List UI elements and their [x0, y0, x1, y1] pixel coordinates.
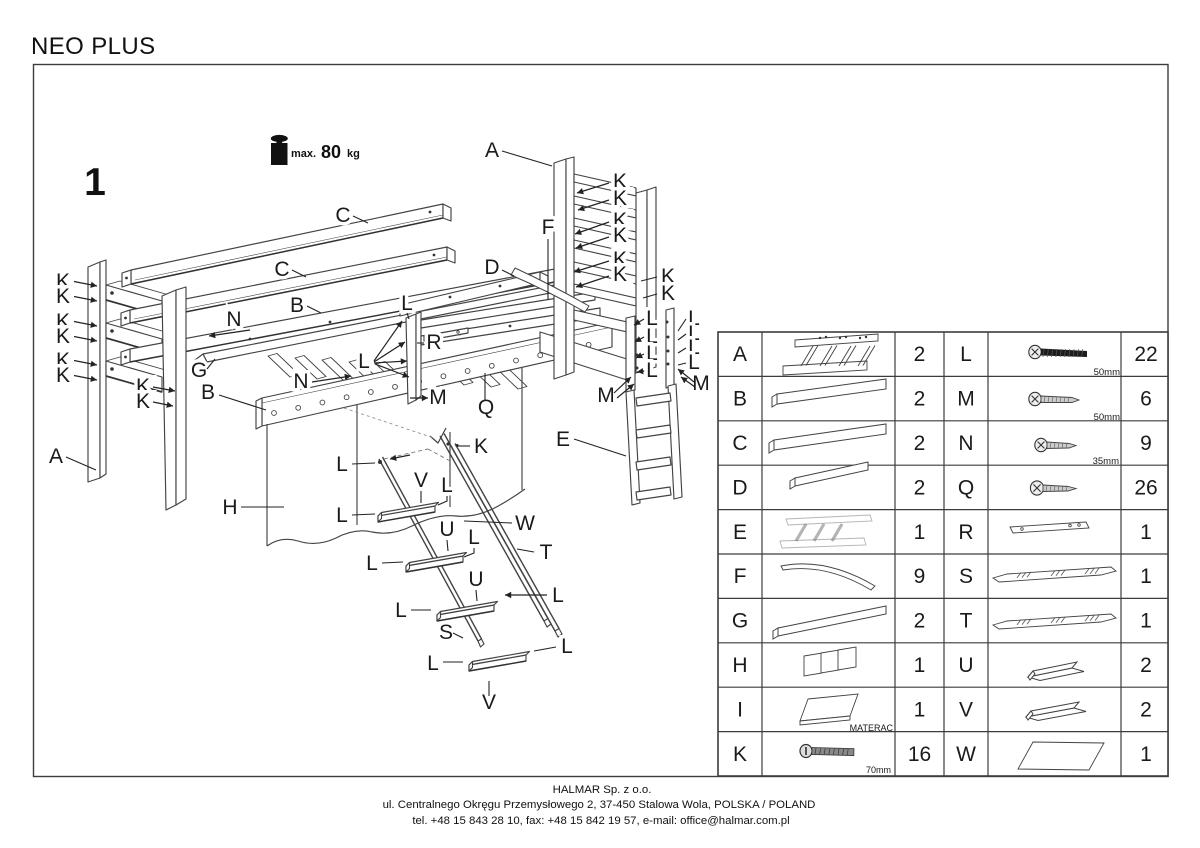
svg-text:L: L: [552, 584, 564, 607]
svg-text:Q: Q: [958, 476, 974, 499]
svg-text:K: K: [56, 325, 70, 348]
svg-text:26: 26: [1134, 476, 1157, 499]
svg-text:1: 1: [914, 521, 926, 544]
svg-text:L: L: [395, 599, 407, 622]
svg-text:H: H: [732, 654, 747, 677]
svg-text:K: K: [661, 282, 675, 305]
svg-text:K: K: [56, 364, 70, 387]
svg-text:70mm: 70mm: [866, 765, 891, 775]
svg-text:2: 2: [914, 343, 926, 366]
svg-text:A: A: [49, 445, 63, 468]
svg-text:R: R: [958, 521, 973, 544]
svg-text:L: L: [688, 351, 700, 374]
svg-text:K: K: [136, 390, 150, 413]
svg-text:2: 2: [1140, 698, 1152, 721]
svg-text:1: 1: [914, 698, 926, 721]
svg-text:E: E: [556, 428, 570, 451]
svg-text:D: D: [732, 476, 747, 499]
svg-text:T: T: [540, 541, 553, 564]
svg-text:L: L: [336, 453, 348, 476]
svg-text:N: N: [958, 432, 973, 455]
svg-text:L: L: [561, 635, 573, 658]
svg-text:L: L: [358, 350, 370, 373]
svg-text:Q: Q: [478, 396, 494, 419]
svg-text:I: I: [737, 698, 743, 721]
svg-text:B: B: [201, 381, 215, 404]
svg-text:U: U: [439, 518, 454, 541]
svg-text:tel. +48 15 843 28 10, fax: +4: tel. +48 15 843 28 10, fax: +48 15 842 1…: [412, 815, 789, 827]
svg-text:L: L: [336, 504, 348, 527]
svg-text:A: A: [485, 139, 499, 162]
svg-text:C: C: [732, 432, 747, 455]
svg-text:ul. Centralnego Okręgu Przemys: ul. Centralnego Okręgu Przemysłowego 2, …: [383, 799, 816, 811]
svg-text:HALMAR Sp. z o.o.: HALMAR Sp. z o.o.: [553, 784, 652, 796]
svg-text:H: H: [222, 496, 237, 519]
svg-text:6: 6: [1140, 388, 1152, 411]
svg-text:max.: max.: [291, 148, 316, 160]
svg-text:L: L: [441, 474, 453, 497]
svg-text:9: 9: [1140, 432, 1152, 455]
svg-text:G: G: [732, 610, 748, 633]
svg-text:K: K: [56, 285, 70, 308]
svg-text:U: U: [958, 654, 973, 677]
svg-text:2: 2: [1140, 654, 1152, 677]
svg-text:V: V: [959, 698, 973, 721]
svg-text:G: G: [191, 359, 207, 382]
svg-text:T: T: [960, 610, 973, 633]
svg-text:C: C: [335, 204, 350, 227]
svg-text:1: 1: [1140, 565, 1152, 588]
svg-text:M: M: [957, 388, 975, 411]
svg-text:1: 1: [914, 654, 926, 677]
svg-text:L: L: [366, 552, 378, 575]
svg-text:50mm: 50mm: [1094, 412, 1120, 423]
svg-text:2: 2: [914, 476, 926, 499]
svg-text:35mm: 35mm: [1093, 456, 1119, 467]
svg-text:U: U: [468, 568, 483, 591]
svg-text:2: 2: [914, 432, 926, 455]
svg-text:22: 22: [1134, 343, 1157, 366]
svg-text:1: 1: [1140, 521, 1152, 544]
svg-text:1: 1: [1140, 743, 1152, 766]
svg-text:D: D: [484, 256, 499, 279]
svg-text:F: F: [542, 216, 555, 239]
svg-text:2: 2: [914, 610, 926, 633]
svg-text:NEO PLUS: NEO PLUS: [31, 33, 156, 60]
svg-text:MATERAC: MATERAC: [850, 723, 894, 733]
svg-text:80: 80: [321, 142, 341, 162]
svg-text:L: L: [646, 359, 658, 382]
svg-text:B: B: [290, 294, 304, 317]
svg-text:S: S: [439, 621, 453, 644]
svg-text:V: V: [414, 469, 428, 492]
svg-text:M: M: [429, 386, 447, 409]
svg-text:E: E: [733, 521, 747, 544]
svg-text:K: K: [474, 435, 488, 458]
svg-text:K: K: [733, 743, 747, 766]
svg-text:S: S: [959, 565, 973, 588]
svg-text:C: C: [274, 258, 289, 281]
svg-text:B: B: [733, 388, 747, 411]
svg-text:W: W: [956, 743, 976, 766]
svg-text:2: 2: [914, 388, 926, 411]
svg-text:L: L: [427, 652, 439, 675]
svg-text:N: N: [226, 308, 241, 331]
svg-text:9: 9: [914, 565, 926, 588]
svg-text:K: K: [613, 187, 627, 210]
svg-text:R: R: [426, 331, 441, 354]
svg-text:M: M: [597, 384, 615, 407]
svg-text:F: F: [734, 565, 747, 588]
svg-text:L: L: [960, 343, 972, 366]
svg-text:M: M: [692, 372, 710, 395]
svg-text:L: L: [468, 526, 480, 549]
svg-text:1: 1: [84, 161, 106, 204]
svg-text:K: K: [613, 224, 627, 247]
svg-text:L: L: [401, 292, 413, 315]
svg-text:W: W: [515, 512, 535, 535]
svg-text:kg: kg: [347, 148, 360, 160]
svg-text:16: 16: [908, 743, 931, 766]
svg-text:1: 1: [1140, 610, 1152, 633]
svg-text:K: K: [613, 263, 627, 286]
svg-text:50mm: 50mm: [1094, 367, 1120, 378]
svg-text:A: A: [733, 343, 747, 366]
svg-text:N: N: [293, 370, 308, 393]
